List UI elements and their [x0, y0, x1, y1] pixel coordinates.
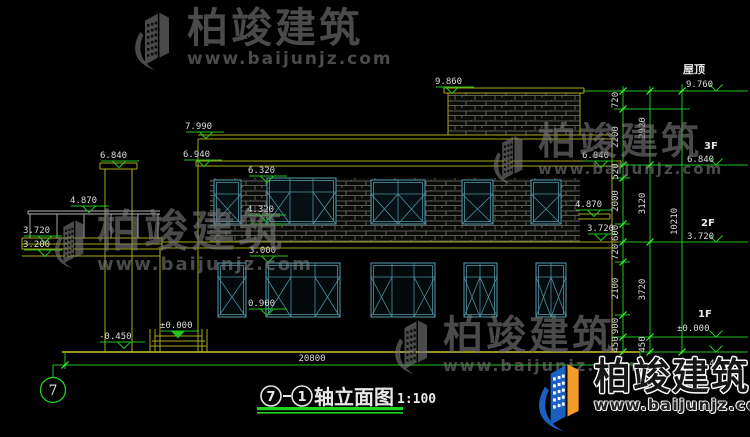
svg-text:600: 600: [611, 225, 621, 241]
total-width-label: 20800: [298, 354, 325, 364]
entrance-level-triangle: [171, 331, 185, 339]
brand-url: www.baijunjz.com: [594, 396, 750, 414]
title-text: 轴立面图: [314, 385, 394, 409]
axis-bubble: 7: [41, 378, 66, 403]
svg-text:900: 900: [611, 318, 621, 334]
window: [464, 263, 497, 317]
chimney: [100, 163, 137, 352]
cad-elevation-screenshot: 9.860 7.990 6.940 6.840 6.840 6.320 4.87…: [0, 0, 750, 437]
floor-slab-2f: [162, 242, 617, 248]
svg-text:720: 720: [611, 244, 621, 260]
level-name: 屋顶: [683, 63, 705, 76]
spot-label: 4.870: [575, 200, 602, 210]
spot-label: 9.860: [435, 77, 462, 87]
spot-label: 4.320: [247, 205, 274, 215]
spot-label: 6.840: [582, 151, 609, 161]
spot-label: 6.320: [248, 166, 275, 176]
overall-height-label: 10210: [670, 208, 680, 235]
spot-label: 6.840: [100, 151, 127, 161]
svg-text:720: 720: [611, 92, 621, 108]
window: [371, 180, 425, 224]
level-value: 6.840: [687, 155, 714, 165]
title-underline-thick: [257, 407, 403, 410]
window: [214, 180, 241, 224]
spot-label: 6.940: [183, 150, 210, 160]
window: [531, 180, 561, 224]
spot-label: ±0.000: [160, 321, 193, 331]
svg-text:3720: 3720: [638, 279, 648, 301]
title-underline-thin: [257, 412, 403, 414]
window: [267, 178, 336, 224]
svg-text:450: 450: [611, 336, 621, 352]
window: [536, 263, 566, 317]
spot-label: 3.720: [23, 226, 50, 236]
stair-penthouse: [448, 93, 580, 135]
level-value: 9.760: [686, 80, 713, 90]
window: [371, 263, 435, 317]
brand-name: 柏竣建筑: [594, 358, 750, 395]
chain-mid-labels: 2920 3120 3720 450: [638, 117, 648, 352]
level-name: 3F: [704, 141, 718, 152]
brand-logo-icon: [532, 358, 588, 434]
level-value: 3.720: [687, 232, 714, 242]
level-value: ±0.000: [677, 324, 710, 334]
title-axis-from: 7: [266, 390, 275, 405]
drawing-title: 7 1 轴立面图 1:100: [257, 385, 436, 414]
level-lines: [682, 91, 748, 352]
title-scale: 1:100: [397, 392, 436, 407]
spot-label: -0.450: [99, 332, 132, 342]
dimension-chains: 720 2200 520 2000 600 720 2100 900 450 2…: [583, 84, 748, 356]
spot-label: 7.990: [185, 122, 212, 132]
window: [218, 263, 246, 317]
brand-logo: 柏竣建筑 www.baijunjz.com: [532, 358, 750, 434]
level-name: 2F: [701, 218, 715, 229]
stair-roof-slab: [444, 88, 584, 93]
svg-text:3120: 3120: [638, 193, 648, 215]
svg-text:2000: 2000: [611, 190, 621, 212]
svg-text:2200: 2200: [611, 126, 621, 148]
title-axis-to: 1: [297, 390, 306, 405]
spot-label: 3.000: [249, 246, 276, 256]
spot-label: 4.870: [70, 196, 97, 206]
svg-text:520: 520: [611, 163, 621, 179]
spot-label: 0.900: [248, 299, 275, 309]
svg-text:450: 450: [638, 336, 648, 352]
spot-label: 3.200: [23, 240, 50, 250]
axis-bubble-label: 7: [49, 383, 58, 399]
svg-text:2100: 2100: [611, 278, 621, 300]
level-name: 1F: [698, 309, 712, 320]
window: [462, 180, 493, 224]
svg-text:2920: 2920: [638, 117, 648, 139]
